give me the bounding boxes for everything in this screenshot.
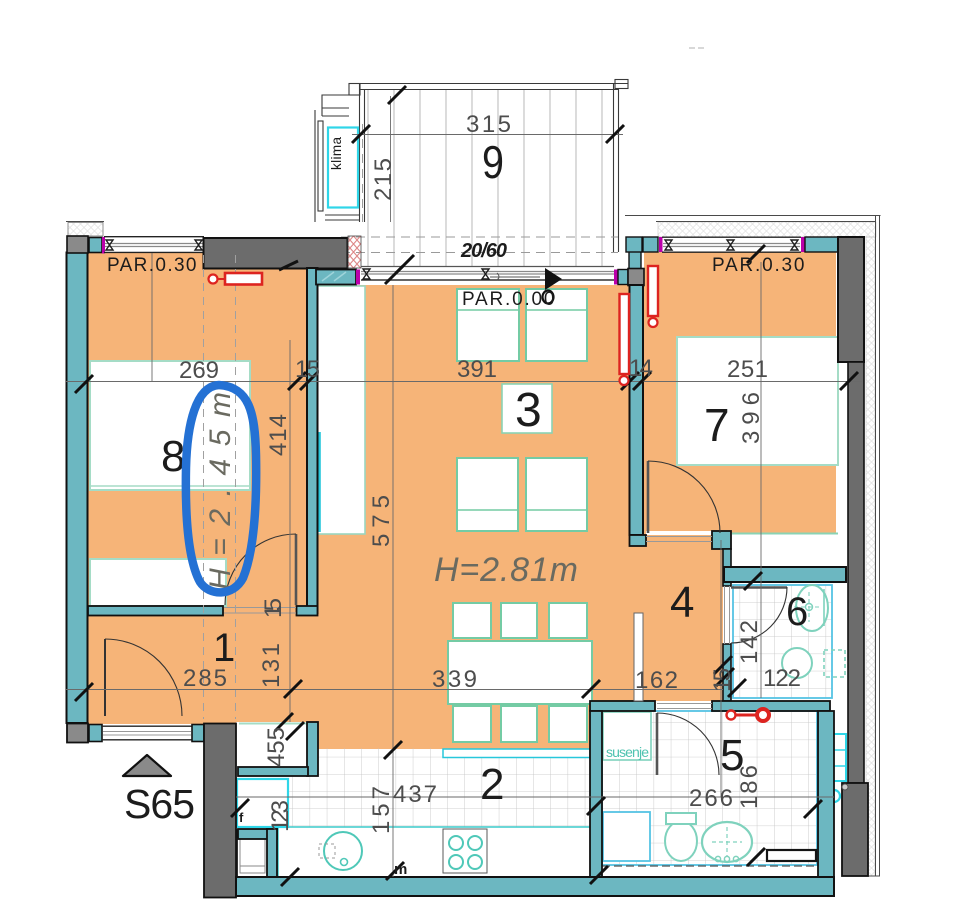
svg-text:m: m: [394, 861, 407, 878]
svg-text:7: 7: [704, 399, 730, 451]
svg-text:20/60: 20/60: [460, 240, 507, 262]
svg-text:122: 122: [763, 665, 801, 692]
svg-text:1: 1: [213, 626, 235, 670]
svg-text:susenje: susenje: [606, 744, 649, 760]
svg-text:5: 5: [720, 731, 744, 780]
svg-text:4: 4: [670, 578, 694, 627]
svg-text:162: 162: [635, 667, 678, 694]
svg-text:2: 2: [480, 760, 504, 809]
svg-text:klima: klima: [329, 137, 344, 170]
svg-text:339: 339: [432, 666, 477, 693]
svg-text:f: f: [239, 810, 244, 825]
svg-text:266: 266: [689, 785, 733, 812]
svg-text:251: 251: [727, 356, 768, 383]
svg-text:9: 9: [482, 136, 504, 188]
svg-text:396: 396: [738, 392, 765, 444]
svg-text:315: 315: [466, 111, 511, 138]
svg-text:157: 157: [368, 786, 395, 834]
svg-text:15: 15: [260, 598, 287, 618]
svg-text:15: 15: [709, 668, 736, 692]
svg-text:3: 3: [515, 384, 542, 437]
svg-text:14: 14: [629, 355, 653, 382]
svg-text:131: 131: [258, 643, 285, 688]
svg-text:S65: S65: [124, 781, 195, 827]
svg-text:437: 437: [393, 781, 437, 808]
svg-text:PAR.0.00: PAR.0.00: [462, 289, 555, 310]
svg-text:215: 215: [370, 158, 397, 201]
svg-text:391: 391: [457, 356, 497, 383]
svg-text:142: 142: [736, 620, 763, 664]
svg-text:15: 15: [295, 356, 320, 383]
svg-text:6: 6: [786, 590, 808, 634]
svg-text:PAR.0.30: PAR.0.30: [107, 255, 197, 276]
svg-text:PAR.0.30: PAR.0.30: [712, 255, 805, 276]
svg-text:575: 575: [368, 495, 395, 547]
svg-text:269: 269: [179, 357, 219, 384]
svg-text:H=2.81m: H=2.81m: [434, 551, 578, 589]
svg-text:123: 123: [267, 800, 294, 832]
svg-text:414: 414: [265, 414, 292, 456]
svg-text:455: 455: [263, 727, 290, 767]
